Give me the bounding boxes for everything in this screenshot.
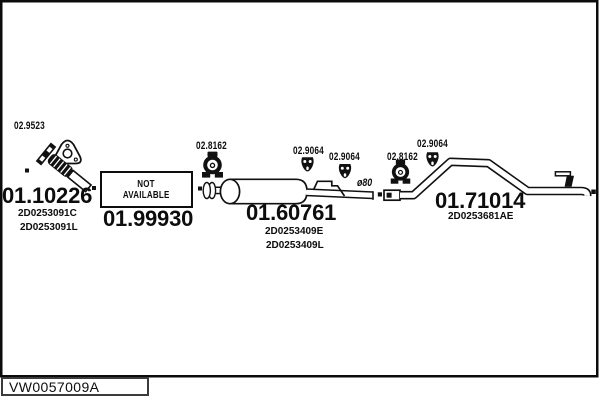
downpipe-part-number: 01.10226 <box>2 185 92 207</box>
not-available-text: AVAILABLE <box>123 190 170 201</box>
centre-muffler-oe-number: 2D0253409E <box>265 226 323 237</box>
vehicle-reference-box: VW0057009A <box>1 377 149 396</box>
hanger-pin-bracket-icon <box>565 176 574 187</box>
downpipe-oe-number: 2D0253091C <box>18 208 77 219</box>
not-available-text: NOT <box>138 179 156 190</box>
gasket-label: 02.9523 <box>14 121 45 132</box>
hanger-icon <box>301 157 313 171</box>
centre-muffler-oe-number: 2D0253409L <box>266 240 324 251</box>
hanger-label: 02.9064 <box>293 146 324 157</box>
pipe-diameter-label: ø80 <box>357 178 372 189</box>
hanger-label: 02.9064 <box>417 139 448 150</box>
vehicle-reference-code: VW0057009A <box>9 379 99 395</box>
clamp-label: 02.8162 <box>196 141 227 152</box>
tail-pipe-oe-number: 2D0253681AE <box>448 211 513 222</box>
tail-pipe-part-number: 01.71014 <box>435 190 525 212</box>
clamp-icon <box>391 160 411 184</box>
hanger-icon <box>426 152 438 166</box>
clamp-icon <box>202 152 223 178</box>
exhaust-diagram-page: 02.9523 02.8162 02.9064 02.9064 02.9064 … <box>0 0 600 400</box>
front-pipe-part-number: 01.99930 <box>103 208 193 230</box>
downpipe-oe-number: 2D0253091L <box>20 222 78 233</box>
centre-muffler-part-number: 01.60761 <box>246 202 336 224</box>
hanger-pin-icon <box>555 172 570 176</box>
hanger-icon <box>339 164 351 178</box>
clamp-label: 02.8162 <box>387 152 418 163</box>
not-available-box: NOT AVAILABLE <box>100 171 193 208</box>
hanger-label: 02.9064 <box>329 152 360 163</box>
